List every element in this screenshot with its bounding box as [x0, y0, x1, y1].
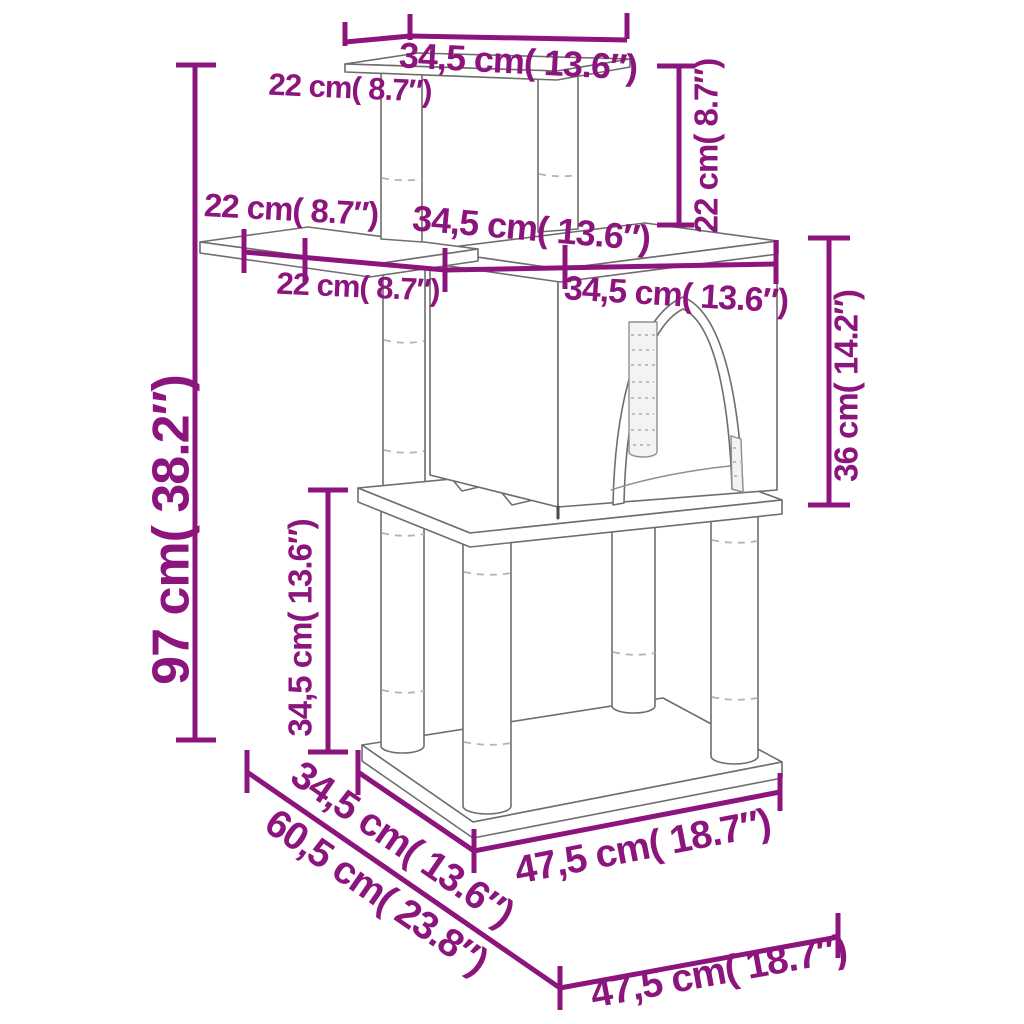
- dim-label-top-board-width: 34,5 cm( 13.6″): [398, 34, 638, 87]
- dim-label-shelf-depth: 22 cm( 8.7″): [203, 186, 379, 232]
- product-dimension-diagram: 22 cm( 8.7″) 34,5 cm( 13.6″) 22 cm( 8.7″…: [0, 0, 1024, 1024]
- dim-label-total-height: 97 cm( 38.2″): [143, 375, 201, 685]
- dim-label-shelf-width: 22 cm( 8.7″): [276, 266, 440, 308]
- dim-label-footprint-width: 47,5 cm( 18.7″): [587, 927, 850, 1017]
- dim-label-top-post-height: 22 cm( 8.7″): [688, 59, 725, 233]
- house-left-wall: [430, 261, 558, 507]
- scratching-post-back-left: [381, 502, 424, 753]
- scratching-post-front: [463, 535, 511, 814]
- dim-label-house-height: 36 cm( 14.2″): [828, 290, 865, 482]
- scratching-post-right: [711, 505, 758, 764]
- dim-label-middle-post-height: 34,5 cm( 13.6″): [282, 519, 319, 736]
- cat-tree-diagram-canvas: 22 cm( 8.7″) 34,5 cm( 13.6″) 22 cm( 8.7″…: [0, 0, 1024, 1024]
- interior-sisal-post: [629, 322, 657, 457]
